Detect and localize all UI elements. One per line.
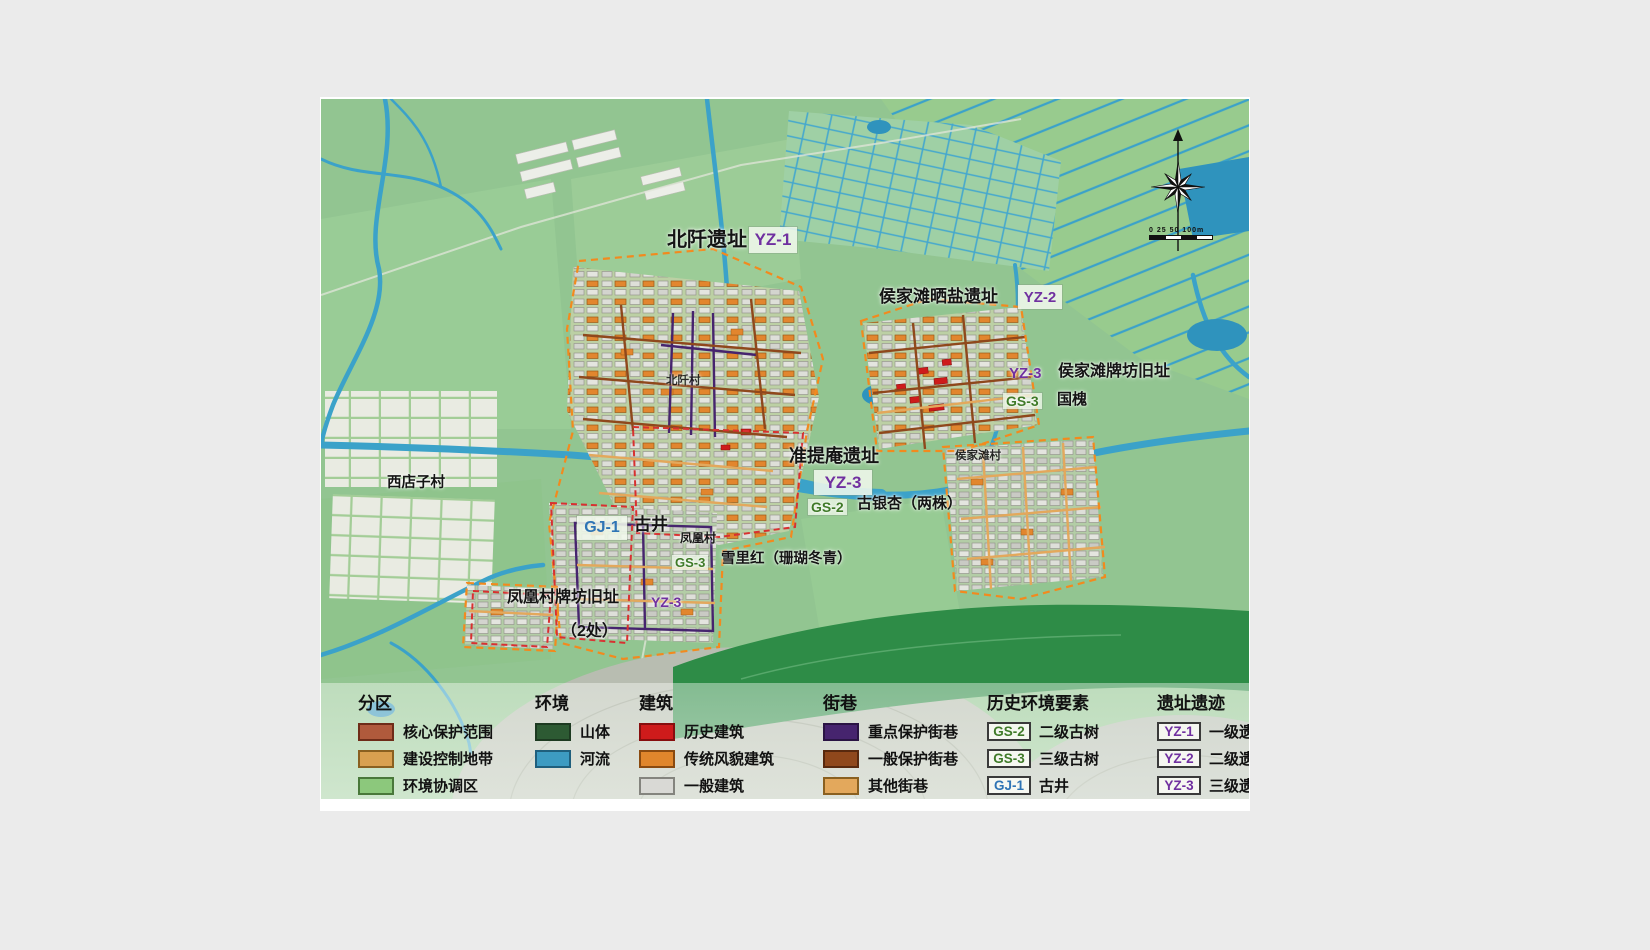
site-label-zhuntian: 准提庵遗址: [789, 447, 879, 467]
label-guohuai: 国槐: [1057, 392, 1087, 409]
site-label-houjiatan-paifang: 侯家滩牌坊旧址: [1058, 363, 1170, 381]
legend-item-historic-building: 历史建筑: [639, 718, 774, 745]
badge-gj1-well: GJ-1: [577, 516, 627, 540]
swatch: [823, 777, 859, 795]
legend-item-river: 河流: [535, 745, 610, 772]
label-gingko: 古银杏（两株）: [857, 496, 962, 513]
legend-item-traditional-building: 传统风貌建筑: [639, 745, 774, 772]
legend-section-environment: 环境 山体 河流: [535, 683, 610, 772]
badge-yz1-beiqian: YZ-1: [749, 227, 797, 253]
village-label-fenghuang: 凤凰村: [680, 532, 716, 545]
badge-gs3-guohuai: GS-3: [1003, 393, 1042, 409]
village-label-beiqian: 北阡村: [666, 375, 701, 388]
legend-item-environment-coordination: 环境协调区: [358, 772, 493, 799]
swatch: [358, 723, 394, 741]
legend-item-mountain: 山体: [535, 718, 610, 745]
site-label-houjiatan-salt: 侯家滩晒盐遗址: [879, 288, 998, 307]
badge-yz3-fenghuang: YZ-3: [651, 594, 681, 610]
badge-gs2-gingko: GS-2: [808, 499, 847, 515]
legend-item-general-street: 一般保护街巷: [823, 745, 958, 772]
village-label-xidianzi: 西店子村: [387, 476, 445, 492]
legend-item-key-street: 重点保护街巷: [823, 718, 958, 745]
legend-title: 建筑: [639, 689, 774, 714]
site-label-fenghuang-paifang: 凤凰村牌坊旧址: [507, 589, 619, 607]
legend-title: 历史环境要素: [987, 689, 1099, 714]
swatch: [823, 750, 859, 768]
legend-item-gs2: GS-2 二级古树: [987, 718, 1099, 745]
swatch: [639, 750, 675, 768]
legend-title: 分区: [358, 689, 493, 714]
legend-item-yz1: YZ-1 一级遗址遗迹: [1157, 718, 1249, 745]
legend-panel: 分区 核心保护范围 建设控制地带 环境协调区 环境 山体: [321, 683, 1249, 799]
legend-section-buildings: 建筑 历史建筑 传统风貌建筑 一般建筑: [639, 683, 774, 799]
scale-text: 0 25 50 100m: [1149, 227, 1213, 234]
legend-section-historic-elements: 历史环境要素 GS-2 二级古树 GS-3 三级古树 GJ-1 古井: [987, 683, 1099, 799]
legend-item-core-protection: 核心保护范围: [358, 718, 493, 745]
swatch: [823, 723, 859, 741]
badge-yz3-zhuntian: YZ-3: [814, 470, 872, 495]
label-well: 古井: [634, 516, 668, 535]
swatch: [358, 750, 394, 768]
legend-title: 遗址遗迹: [1157, 689, 1249, 714]
badge-yz3-houjiatan-paifang: YZ-3: [1009, 365, 1042, 382]
legend-badge-gs2: GS-2: [987, 722, 1031, 741]
legend-item-yz3: YZ-3 三级遗址遗迹: [1157, 772, 1249, 799]
field-grid: [325, 391, 497, 487]
conservation-plan-map: 北阡遗址 YZ-1 侯家滩晒盐遗址 YZ-2 YZ-3 侯家滩牌坊旧址 GS-3…: [321, 99, 1249, 799]
legend-badge-yz2: YZ-2: [1157, 749, 1201, 768]
badge-gs3-xuelihong: GS-3: [672, 555, 708, 570]
label-fenghuang-count: （2处）: [561, 623, 618, 641]
swatch: [358, 777, 394, 795]
site-label-beiqian: 北阡遗址: [667, 229, 747, 251]
legend-section-streets: 街巷 重点保护街巷 一般保护街巷 其他街巷: [823, 683, 958, 799]
legend-item-gj1: GJ-1 古井: [987, 772, 1099, 799]
legend-badge-yz1: YZ-1: [1157, 722, 1201, 741]
legend-badge-gj1: GJ-1: [987, 776, 1031, 795]
legend-title: 街巷: [823, 689, 958, 714]
scale-bar: 0 25 50 100m: [1149, 227, 1213, 240]
legend-item-gs3: GS-3 三级古树: [987, 745, 1099, 772]
legend-item-construction-control: 建设控制地带: [358, 745, 493, 772]
village-label-houjiatan: 侯家滩村: [955, 450, 1001, 463]
legend-title: 环境: [535, 689, 610, 714]
screenshot-stage: 北阡遗址 YZ-1 侯家滩晒盐遗址 YZ-2 YZ-3 侯家滩牌坊旧址 GS-3…: [0, 0, 1650, 950]
swatch: [535, 723, 571, 741]
legend-item-yz2: YZ-2 二级遗址遗迹: [1157, 745, 1249, 772]
badge-yz2-houjiatan-salt: YZ-2: [1018, 285, 1062, 309]
swatch: [535, 750, 571, 768]
swatch: [639, 723, 675, 741]
legend-section-relics: 遗址遗迹 YZ-1 一级遗址遗迹 YZ-2 二级遗址遗迹 YZ-3 三级遗址遗迹: [1157, 683, 1249, 799]
legend-item-other-street: 其他街巷: [823, 772, 958, 799]
label-xuelihong: 雪里红（珊瑚冬青）: [721, 552, 852, 568]
legend-badge-yz3: YZ-3: [1157, 776, 1201, 795]
swatch: [639, 777, 675, 795]
legend-section-zoning: 分区 核心保护范围 建设控制地带 环境协调区: [358, 683, 493, 799]
legend-badge-gs3: GS-3: [987, 749, 1031, 768]
legend-item-ordinary-building: 一般建筑: [639, 772, 774, 799]
